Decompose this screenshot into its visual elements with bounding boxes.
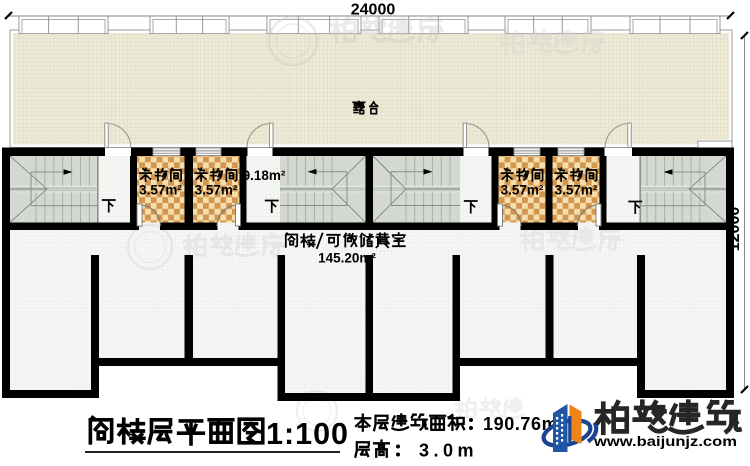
svg-text:190.76m²: 190.76m²	[483, 414, 565, 434]
svg-text:9.18m²: 9.18m²	[243, 168, 286, 183]
svg-text:3.57m²: 3.57m²	[501, 183, 544, 198]
svg-text:3.57m²: 3.57m²	[195, 183, 238, 198]
svg-text:145.20m²: 145.20m²	[318, 251, 376, 266]
svg-text:3.57m²: 3.57m²	[139, 183, 182, 198]
svg-text:24000: 24000	[351, 2, 396, 19]
svg-text:3.57m²: 3.57m²	[555, 183, 598, 198]
svg-text:1:100: 1:100	[266, 417, 349, 451]
svg-text:3.0m: 3.0m	[419, 441, 478, 461]
svg-text:www.baijunjz.com: www.baijunjz.com	[593, 434, 737, 449]
